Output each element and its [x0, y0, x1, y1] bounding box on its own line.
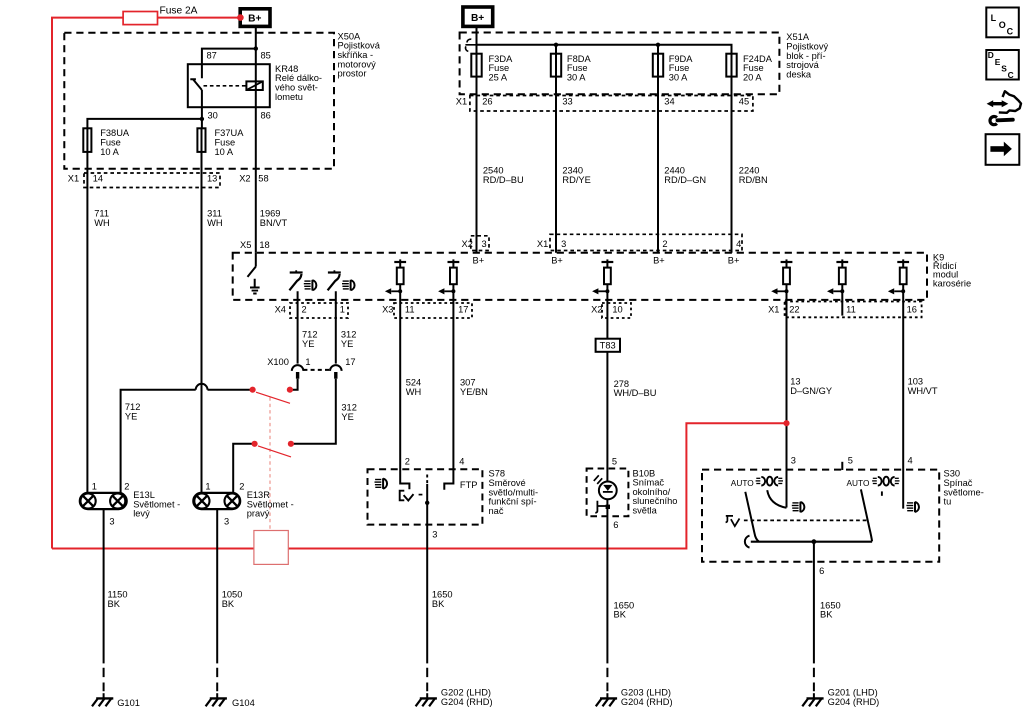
svg-text:WH: WH	[207, 218, 223, 228]
svg-text:WH: WH	[94, 218, 110, 228]
svg-text:D–GN/GY: D–GN/GY	[790, 386, 832, 396]
svg-text:17: 17	[345, 357, 355, 367]
svg-text:RD/BN: RD/BN	[739, 175, 768, 185]
svg-text:S: S	[1001, 63, 1007, 73]
svg-text:26: 26	[482, 97, 492, 107]
svg-text:18: 18	[259, 240, 269, 250]
svg-text:G101: G101	[117, 698, 140, 708]
svg-text:X1: X1	[537, 239, 548, 249]
svg-text:2: 2	[405, 456, 410, 466]
svg-text:X4: X4	[275, 305, 286, 315]
svg-text:YE: YE	[125, 411, 137, 421]
svg-text:G104: G104	[232, 698, 255, 708]
svg-text:30 A: 30 A	[567, 72, 586, 82]
svg-text:BK: BK	[614, 610, 627, 620]
svg-text:30: 30	[208, 111, 218, 121]
svg-text:G204 (RHD): G204 (RHD)	[828, 697, 880, 707]
svg-text:YE: YE	[302, 339, 314, 349]
svg-text:30 A: 30 A	[669, 72, 688, 82]
svg-text:87: 87	[207, 51, 217, 61]
svg-text:14: 14	[93, 174, 103, 184]
svg-text:RD/D–BU: RD/D–BU	[483, 175, 524, 185]
svg-text:3: 3	[224, 516, 229, 526]
svg-text:AUTO: AUTO	[847, 478, 870, 488]
svg-text:G204 (RHD): G204 (RHD)	[441, 697, 493, 707]
svg-text:B+: B+	[653, 255, 665, 265]
svg-text:WH: WH	[406, 387, 422, 397]
svg-text:25 A: 25 A	[489, 72, 508, 82]
svg-text:FTP: FTP	[460, 480, 478, 490]
svg-text:E: E	[995, 57, 1001, 67]
svg-text:nač: nač	[489, 506, 504, 516]
svg-text:4: 4	[908, 455, 913, 465]
svg-text:16: 16	[907, 305, 917, 315]
svg-text:58: 58	[258, 174, 268, 184]
svg-text:BN/VT: BN/VT	[260, 218, 288, 228]
svg-text:6: 6	[819, 566, 824, 576]
svg-text:T83: T83	[600, 341, 616, 351]
svg-text:6: 6	[613, 520, 618, 530]
svg-text:O: O	[999, 20, 1006, 30]
svg-text:3: 3	[432, 530, 437, 540]
svg-text:10 A: 10 A	[100, 147, 119, 157]
svg-text:C: C	[1007, 27, 1014, 37]
svg-text:X2: X2	[591, 305, 602, 315]
svg-text:1: 1	[92, 482, 97, 492]
svg-text:B+: B+	[473, 255, 485, 265]
svg-text:3: 3	[482, 239, 487, 249]
svg-text:10 A: 10 A	[215, 147, 234, 157]
svg-text:3: 3	[791, 455, 796, 465]
svg-text:11: 11	[405, 305, 415, 315]
svg-text:YE: YE	[341, 412, 353, 422]
svg-text:tu: tu	[944, 497, 952, 507]
svg-text:2: 2	[302, 305, 307, 315]
svg-text:1: 1	[340, 305, 345, 315]
svg-text:BK: BK	[222, 599, 235, 609]
svg-text:BK: BK	[820, 610, 833, 620]
svg-text:2: 2	[662, 239, 667, 249]
svg-text:B+: B+	[471, 13, 484, 24]
svg-text:1: 1	[305, 357, 310, 367]
svg-text:3: 3	[561, 239, 566, 249]
svg-text:11: 11	[846, 305, 856, 315]
svg-text:20 A: 20 A	[743, 72, 762, 82]
svg-text:3: 3	[109, 516, 114, 526]
svg-text:BK: BK	[432, 599, 445, 609]
svg-text:deska: deska	[786, 69, 812, 79]
svg-text:2: 2	[239, 482, 244, 492]
svg-text:X1: X1	[768, 305, 779, 315]
svg-text:C: C	[1008, 70, 1014, 80]
svg-text:L: L	[991, 13, 997, 23]
svg-text:5: 5	[848, 455, 853, 465]
svg-text:D: D	[988, 50, 994, 60]
svg-text:13: 13	[207, 174, 217, 184]
svg-text:85: 85	[261, 51, 271, 61]
svg-text:X2: X2	[239, 174, 250, 184]
svg-text:BK: BK	[108, 599, 121, 609]
svg-text:4: 4	[459, 456, 464, 466]
svg-text:AUTO: AUTO	[731, 478, 754, 488]
svg-text:86: 86	[261, 111, 271, 121]
svg-text:YE/BN: YE/BN	[460, 387, 488, 397]
svg-text:RD/D–GN: RD/D–GN	[664, 175, 706, 185]
svg-text:Fuse 2A: Fuse 2A	[160, 5, 198, 16]
svg-text:34: 34	[664, 97, 674, 107]
svg-text:prostor: prostor	[338, 69, 367, 79]
svg-text:X3: X3	[382, 305, 393, 315]
svg-text:33: 33	[562, 97, 572, 107]
svg-text:17: 17	[458, 305, 468, 315]
svg-text:X5: X5	[240, 240, 251, 250]
svg-text:YE: YE	[341, 339, 353, 349]
svg-text:X1: X1	[456, 97, 467, 107]
svg-text:2: 2	[124, 482, 129, 492]
svg-text:RD/YE: RD/YE	[562, 175, 590, 185]
svg-text:B+: B+	[248, 14, 261, 25]
svg-text:pravý: pravý	[247, 509, 270, 519]
svg-text:levý: levý	[133, 509, 150, 519]
svg-text:22: 22	[789, 305, 799, 315]
svg-text:45: 45	[739, 97, 749, 107]
svg-text:4: 4	[736, 239, 741, 249]
svg-text:G201 (LHD): G201 (LHD)	[828, 687, 878, 697]
svg-text:světla: světla	[633, 506, 658, 516]
svg-text:B+: B+	[551, 255, 563, 265]
svg-text:5: 5	[612, 457, 617, 467]
svg-text:X1: X1	[68, 174, 79, 184]
svg-text:G204 (RHD): G204 (RHD)	[621, 697, 673, 707]
svg-text:karosérie: karosérie	[933, 278, 971, 288]
svg-text:WH/VT: WH/VT	[908, 386, 938, 396]
svg-text:X2: X2	[462, 239, 473, 249]
svg-text:G203 (LHD): G203 (LHD)	[621, 687, 671, 697]
svg-text:1: 1	[205, 482, 210, 492]
svg-text:X100: X100	[267, 357, 289, 367]
svg-text:WH/D–BU: WH/D–BU	[614, 388, 657, 398]
svg-text:lometu: lometu	[275, 92, 303, 102]
svg-text:B+: B+	[728, 255, 740, 265]
svg-text:G202 (LHD): G202 (LHD)	[441, 687, 491, 697]
svg-text:10: 10	[612, 305, 622, 315]
